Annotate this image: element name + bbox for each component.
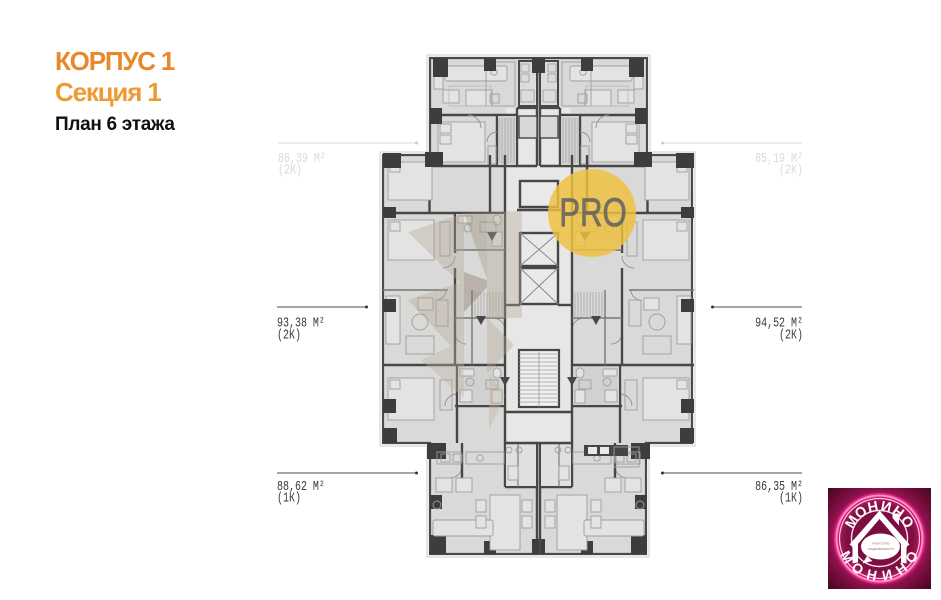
svg-text:(2К): (2К)	[779, 162, 803, 178]
svg-text:План 6 этажа: План 6 этажа	[55, 114, 175, 135]
svg-text:(2К): (2К)	[779, 327, 803, 343]
svg-text:(1К): (1К)	[277, 490, 301, 506]
svg-text:Секция 1: Секция 1	[55, 77, 161, 107]
svg-text:недвижимости: недвижимости	[868, 547, 894, 551]
svg-text:(2К): (2К)	[278, 162, 302, 178]
svg-text:(1К): (1К)	[779, 490, 803, 506]
svg-text:(2К): (2К)	[277, 327, 301, 343]
svg-text:PRO: PRO	[559, 190, 627, 235]
svg-text:Агентство: Агентство	[872, 542, 889, 546]
svg-text:КОРПУС 1: КОРПУС 1	[55, 46, 175, 76]
